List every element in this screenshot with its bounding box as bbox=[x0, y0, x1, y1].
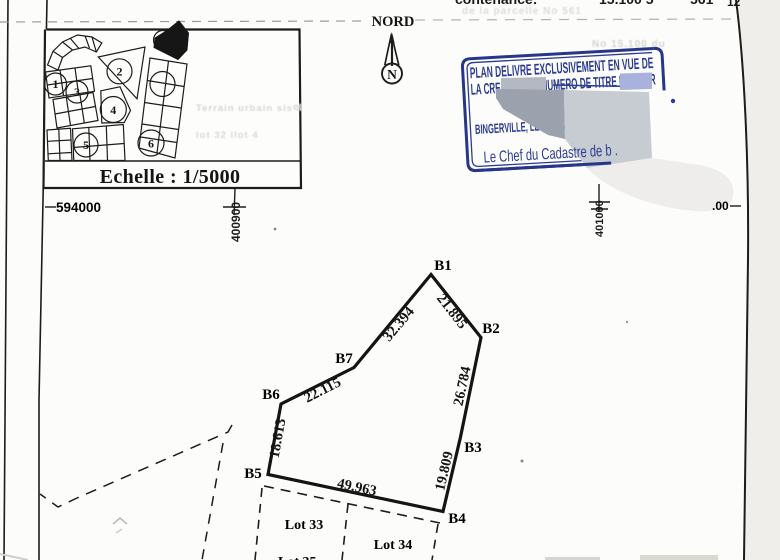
svg-text:NORD: NORD bbox=[372, 14, 415, 30]
svg-text:B1: B1 bbox=[434, 258, 452, 274]
svg-text:lot 32 ilot 4: lot 32 ilot 4 bbox=[196, 130, 259, 141]
svg-text:5: 5 bbox=[83, 138, 89, 152]
svg-text:N: N bbox=[387, 67, 397, 82]
svg-text:401000: 401000 bbox=[594, 200, 606, 237]
svg-text:12: 12 bbox=[727, 0, 741, 9]
svg-text:B2: B2 bbox=[482, 321, 500, 337]
svg-text:B7: B7 bbox=[335, 351, 353, 367]
svg-text:et: et bbox=[293, 102, 303, 113]
svg-text:6: 6 bbox=[148, 137, 154, 151]
svg-text:Terrain urbain sis a: Terrain urbain sis a bbox=[196, 103, 303, 114]
svg-text:de la parcelle No 561: de la parcelle No 561 bbox=[462, 6, 582, 17]
svg-text:Echelle : 1/5000: Echelle : 1/5000 bbox=[100, 166, 241, 188]
svg-text:1: 1 bbox=[53, 77, 59, 91]
svg-text:B3: B3 bbox=[464, 440, 482, 456]
svg-text:3: 3 bbox=[74, 85, 80, 99]
svg-text:561: 561 bbox=[690, 0, 714, 7]
svg-text:400900: 400900 bbox=[229, 202, 243, 242]
svg-text:.00: .00 bbox=[712, 199, 729, 213]
svg-text:B6: B6 bbox=[262, 387, 280, 403]
svg-text:594000: 594000 bbox=[56, 200, 101, 215]
svg-text:Lot 34: Lot 34 bbox=[374, 538, 413, 553]
svg-text:B5: B5 bbox=[244, 466, 262, 482]
svg-text:2: 2 bbox=[117, 65, 123, 79]
svg-text:Lot 35: Lot 35 bbox=[278, 555, 317, 560]
svg-text:B4: B4 bbox=[448, 511, 466, 527]
svg-text:15.100 5: 15.100 5 bbox=[599, 0, 654, 7]
svg-text:4: 4 bbox=[110, 103, 116, 117]
svg-text:Lot 33: Lot 33 bbox=[285, 518, 324, 533]
